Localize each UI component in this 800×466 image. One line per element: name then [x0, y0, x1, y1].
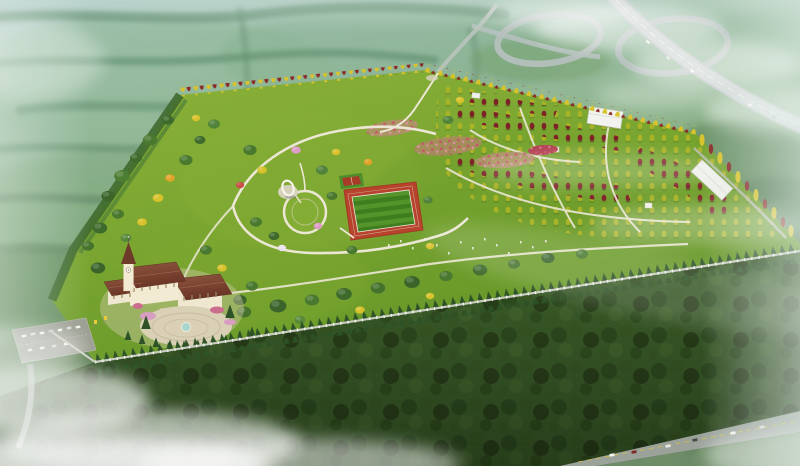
tree [114, 170, 130, 182]
right-haze-band [700, 0, 800, 466]
tree [423, 196, 433, 203]
tree [192, 115, 200, 121]
tree [137, 218, 147, 225]
tree [439, 271, 452, 281]
tree [327, 192, 338, 200]
tree [101, 191, 114, 201]
tree [347, 246, 358, 254]
tree [336, 288, 352, 300]
tree [305, 294, 319, 305]
north-gate [426, 75, 438, 81]
tree [332, 149, 340, 155]
aerial-rendering [0, 0, 800, 466]
tree [91, 262, 105, 273]
tree [162, 115, 174, 124]
tree [291, 146, 301, 153]
tree [316, 165, 328, 174]
tree [257, 166, 267, 173]
tree [364, 159, 372, 165]
tree [165, 174, 175, 181]
tree [121, 234, 132, 242]
clock-tower [124, 263, 134, 291]
tree [404, 276, 420, 288]
tree [130, 153, 142, 162]
tree [112, 209, 124, 218]
tree [153, 194, 164, 202]
tree [270, 300, 287, 313]
tree [314, 223, 322, 229]
tree [246, 281, 258, 290]
tree [278, 245, 286, 251]
tree [426, 293, 434, 299]
tree [236, 182, 244, 188]
fountain [182, 323, 191, 332]
tree [200, 245, 212, 254]
tree [443, 116, 454, 124]
left-haze-band [0, 0, 90, 466]
tree [217, 264, 227, 271]
tree [93, 222, 107, 233]
tree [456, 97, 464, 103]
tree [250, 217, 262, 226]
tree [208, 119, 220, 128]
tree [269, 232, 280, 240]
tree [371, 282, 385, 293]
rendering-canvas [0, 0, 800, 466]
tree [143, 134, 157, 145]
tree [195, 136, 206, 144]
tree [243, 145, 256, 155]
tree [179, 155, 192, 165]
